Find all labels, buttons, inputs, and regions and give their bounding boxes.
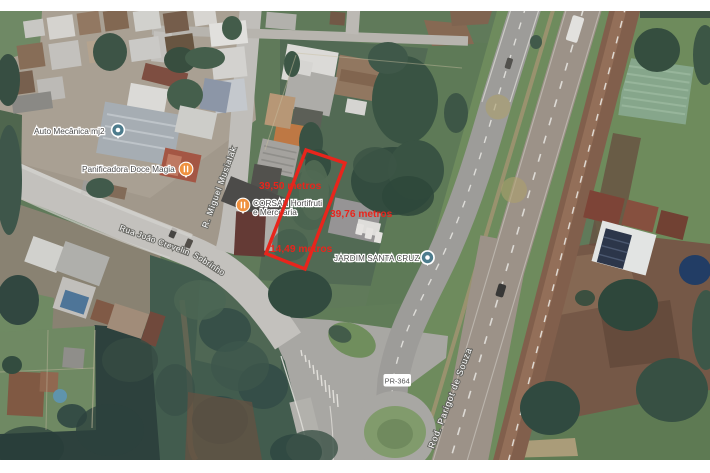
svg-text:39,76 metros: 39,76 metros (330, 209, 393, 220)
svg-text:39,50 metros: 39,50 metros (259, 181, 322, 192)
svg-text:PR-364: PR-364 (385, 376, 410, 385)
svg-text:14,49 metros: 14,49 metros (270, 244, 333, 255)
svg-text:e Mercearia: e Mercearia (253, 207, 297, 217)
svg-text:JARDIM SANTA CRUZ: JARDIM SANTA CRUZ (334, 254, 419, 263)
svg-text:Panificadora Doce Magia: Panificadora Doce Magia (82, 164, 175, 174)
svg-text:Auto Mecânica mj2: Auto Mecânica mj2 (34, 126, 105, 136)
